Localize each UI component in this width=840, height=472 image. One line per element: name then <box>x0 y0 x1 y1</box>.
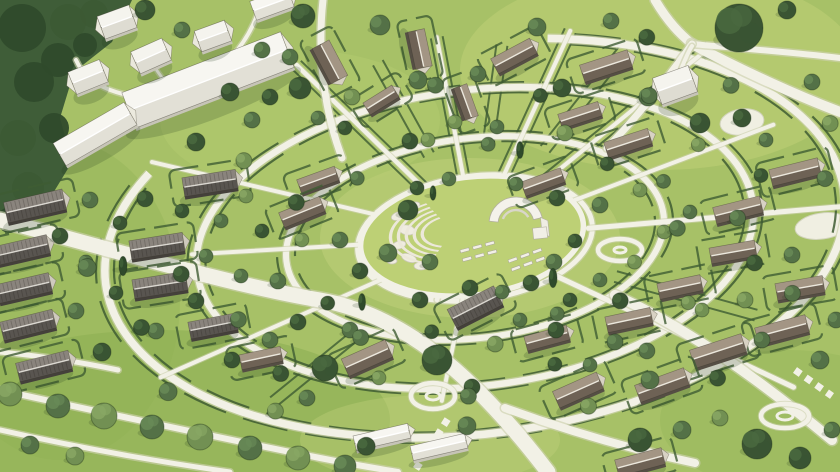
canopy-blob <box>60 234 67 241</box>
canopy-blob <box>420 298 427 305</box>
canopy-blob <box>232 358 239 365</box>
canopy-highlight <box>682 297 690 305</box>
canopy-blob <box>830 121 837 128</box>
canopy-highlight <box>412 293 421 302</box>
canopy-blob <box>690 210 696 216</box>
canopy-blob <box>825 177 832 184</box>
canopy-highlight <box>642 89 651 98</box>
canopy-highlight <box>332 233 341 242</box>
canopy-blob <box>688 301 694 307</box>
canopy-highlight <box>639 30 648 39</box>
canopy-blob <box>145 8 154 17</box>
canopy-highlight <box>784 248 793 257</box>
canopy-highlight <box>311 112 319 120</box>
canopy-highlight <box>294 447 305 458</box>
canopy-blob <box>792 291 799 298</box>
canopy-highlight <box>811 352 821 362</box>
canopy-highlight <box>187 134 197 144</box>
canopy-blob <box>379 376 385 382</box>
canopy-highlight <box>673 422 683 432</box>
canopy-blob <box>647 35 654 42</box>
canopy-highlight <box>236 154 245 163</box>
canopy-blob <box>554 260 561 267</box>
canopy-blob <box>196 140 204 148</box>
canopy-highlight <box>421 134 429 142</box>
canopy-blob <box>270 95 277 102</box>
canopy-highlight <box>747 256 756 265</box>
canopy-blob <box>298 320 305 327</box>
canopy-highlight <box>273 367 282 376</box>
canopy-blob <box>206 254 212 260</box>
canopy-highlight <box>174 267 183 276</box>
canopy-blob <box>141 325 148 332</box>
canopy-blob <box>182 28 189 35</box>
canopy-highlight <box>295 234 303 242</box>
canopy-highlight <box>371 17 382 28</box>
canopy-highlight <box>255 225 263 233</box>
canopy-blob <box>590 363 596 369</box>
canopy-blob <box>531 281 538 288</box>
canopy-highlight <box>214 215 222 223</box>
canopy-blob <box>470 286 477 293</box>
site-plan-svg <box>0 0 840 472</box>
canopy-highlight <box>752 430 766 444</box>
canopy-highlight <box>289 196 298 205</box>
canopy-highlight <box>231 313 240 322</box>
canopy-blob <box>718 376 725 383</box>
canopy-blob <box>497 125 503 131</box>
canopy-blob <box>755 261 762 268</box>
canopy-highlight <box>351 172 359 180</box>
canopy-blob <box>428 138 434 144</box>
canopy-highlight <box>254 43 263 52</box>
canopy-highlight <box>148 416 159 427</box>
canopy-blob <box>432 330 438 336</box>
canopy-blob <box>635 260 641 266</box>
canopy-highlight <box>299 391 308 400</box>
tree <box>713 4 763 52</box>
canopy-blob <box>766 138 772 144</box>
canopy-highlight <box>804 75 813 84</box>
forest-canopy-blob <box>0 4 46 52</box>
forest-canopy-blob <box>73 33 97 57</box>
canopy-highlight <box>239 190 247 198</box>
canopy-blob <box>488 143 494 149</box>
canopy-highlight <box>723 79 732 88</box>
canopy-highlight <box>551 308 559 316</box>
canopy-blob <box>168 389 176 397</box>
canopy-blob <box>352 95 359 102</box>
canopy-blob <box>418 78 426 86</box>
canopy-highlight <box>759 134 767 142</box>
canopy-blob <box>449 177 455 183</box>
canopy-highlight <box>246 437 257 448</box>
canopy-blob <box>246 194 252 200</box>
canopy-blob <box>366 444 374 452</box>
canopy-highlight <box>731 5 753 27</box>
canopy-highlight <box>262 90 271 99</box>
canopy-blob <box>647 349 654 356</box>
canopy-highlight <box>778 2 788 12</box>
canopy-highlight <box>583 359 591 367</box>
canopy-blob <box>102 350 110 358</box>
canopy-highlight <box>299 5 310 16</box>
canopy-highlight <box>410 182 418 190</box>
canopy-highlight <box>262 333 271 342</box>
canopy-highlight <box>509 178 517 186</box>
canopy-highlight <box>568 235 576 243</box>
canopy-blob <box>360 269 367 276</box>
canopy-blob <box>430 260 437 267</box>
canopy-highlight <box>628 256 636 264</box>
canopy-blob <box>230 90 238 98</box>
canopy-highlight <box>136 2 147 13</box>
canopy-highlight <box>464 380 473 389</box>
canopy-highlight <box>548 323 557 332</box>
canopy-highlight <box>54 395 65 406</box>
canopy-highlight <box>790 449 802 461</box>
canopy-blob <box>540 94 546 100</box>
canopy-highlight <box>221 84 231 94</box>
canopy-highlight <box>712 411 721 420</box>
canopy-blob <box>467 424 475 432</box>
canopy-highlight <box>695 304 703 312</box>
canopy-blob <box>252 118 259 125</box>
canopy-blob <box>455 120 461 126</box>
canopy-blob <box>380 23 389 32</box>
canopy-highlight <box>823 117 832 126</box>
canopy-highlight <box>372 372 380 380</box>
canopy-blob <box>565 131 572 138</box>
canopy-blob <box>761 174 767 180</box>
canopy-highlight <box>603 14 612 23</box>
canopy-highlight <box>422 255 431 264</box>
canopy-highlight <box>134 321 143 330</box>
canopy-highlight <box>199 250 207 258</box>
canopy-blob <box>792 253 799 260</box>
canopy-blob <box>600 203 607 210</box>
canopy-blob <box>435 83 442 90</box>
canopy-highlight <box>338 122 346 130</box>
canopy-highlight <box>513 314 521 322</box>
canopy-blob <box>562 86 570 94</box>
canopy-blob <box>649 94 656 101</box>
community-master-plan-illustration <box>0 0 840 472</box>
canopy-highlight <box>244 113 253 122</box>
canopy-highlight <box>290 79 302 91</box>
canopy-highlight <box>68 304 77 313</box>
canopy-blob <box>478 72 485 79</box>
canopy-highlight <box>402 134 411 143</box>
canopy-blob <box>90 198 97 205</box>
canopy-highlight <box>138 192 147 201</box>
canopy-blob <box>812 80 819 87</box>
canopy-blob <box>281 372 288 379</box>
canopy-blob <box>520 318 526 324</box>
canopy-highlight <box>470 67 479 76</box>
canopy-blob <box>650 378 658 386</box>
canopy-blob <box>275 409 282 416</box>
canopy-blob <box>745 298 752 305</box>
canopy-blob <box>820 358 828 366</box>
canopy-highlight <box>352 264 361 273</box>
canopy-blob <box>262 229 268 235</box>
canopy-highlight <box>399 202 410 213</box>
canopy-blob <box>677 226 684 233</box>
canopy-highlight <box>109 287 117 295</box>
canopy-blob <box>196 299 203 306</box>
canopy-highlight <box>710 371 719 380</box>
canopy-highlight <box>353 331 362 340</box>
canopy-blob <box>340 238 347 245</box>
canopy-blob <box>762 338 769 345</box>
canopy-highlight <box>607 335 616 344</box>
canopy-highlight <box>270 274 279 283</box>
canopy-highlight <box>268 404 277 413</box>
canopy-blob <box>516 182 522 188</box>
canopy-blob <box>702 308 708 314</box>
canopy-blob <box>742 116 750 124</box>
canopy-highlight <box>6 383 17 394</box>
canopy-highlight <box>409 72 419 82</box>
canopy-blob <box>588 404 595 411</box>
canopy-highlight <box>754 169 762 177</box>
canopy-blob <box>241 274 247 280</box>
canopy-highlight <box>430 187 433 194</box>
canopy-highlight <box>448 116 456 124</box>
canopy-blob <box>300 85 310 95</box>
canopy-highlight <box>785 287 794 296</box>
canopy-blob <box>296 200 303 207</box>
canopy-highlight <box>548 358 556 366</box>
canopy-highlight <box>358 439 368 449</box>
canopy-highlight <box>344 90 353 99</box>
canopy-blob <box>468 394 475 401</box>
canopy-blob <box>120 221 126 227</box>
canopy-highlight <box>657 226 665 234</box>
canopy-blob <box>664 180 670 186</box>
canopy-highlight <box>546 255 555 264</box>
canopy-blob <box>262 48 269 55</box>
canopy-blob <box>221 219 227 225</box>
canopy-highlight <box>21 437 31 447</box>
canopy-highlight <box>557 126 566 135</box>
canopy-highlight <box>82 193 91 202</box>
canopy-blob <box>307 396 314 403</box>
canopy-highlight <box>581 399 590 408</box>
canopy-highlight <box>553 80 563 90</box>
canopy-blob <box>417 186 423 192</box>
canopy-blob <box>145 197 152 204</box>
canopy-highlight <box>657 175 665 183</box>
forest-canopy-blob <box>0 120 36 156</box>
canopy-blob <box>575 239 581 245</box>
canopy-highlight <box>636 429 647 440</box>
canopy-highlight <box>639 344 648 353</box>
canopy-highlight <box>174 23 183 32</box>
canopy-blob <box>302 238 308 244</box>
canopy-blob <box>357 177 363 183</box>
canopy-highlight <box>549 270 553 280</box>
canopy-blob <box>620 299 627 306</box>
canopy-highlight <box>495 286 503 294</box>
canopy-highlight <box>641 372 651 382</box>
canopy-blob <box>156 329 163 336</box>
canopy-highlight <box>224 353 233 362</box>
canopy-highlight <box>592 198 601 207</box>
canopy-highlight <box>458 418 468 428</box>
canopy-highlight <box>733 110 743 120</box>
canopy-blob <box>615 340 622 347</box>
canopy-blob <box>611 19 618 26</box>
canopy-highlight <box>175 205 183 213</box>
canopy-blob <box>345 126 351 132</box>
canopy-highlight <box>462 281 471 290</box>
canopy-highlight <box>593 274 601 282</box>
canopy-blob <box>328 301 334 307</box>
canopy-blob <box>698 143 704 149</box>
canopy-blob <box>640 188 646 194</box>
canopy-blob <box>290 55 297 62</box>
stage-structure <box>533 227 548 239</box>
canopy-highlight <box>730 211 739 220</box>
canopy-highlight <box>342 323 351 332</box>
canopy-blob <box>278 279 285 286</box>
canopy-highlight <box>523 276 532 285</box>
canopy-blob <box>361 336 368 343</box>
canopy-blob <box>570 298 576 304</box>
canopy-blob <box>75 454 83 462</box>
canopy-blob <box>182 209 188 215</box>
canopy-highlight <box>99 404 111 416</box>
canopy-blob <box>556 328 563 335</box>
canopy-highlight <box>113 217 121 225</box>
canopy-highlight <box>534 90 542 98</box>
canopy-blob <box>30 443 38 451</box>
canopy-highlight <box>670 221 679 230</box>
canopy-blob <box>557 312 563 318</box>
canopy-highlight <box>160 384 170 394</box>
canopy-highlight <box>93 344 103 354</box>
canopy-blob <box>388 251 396 259</box>
canopy-highlight <box>428 78 437 87</box>
canopy-blob <box>270 338 277 345</box>
canopy-highlight <box>517 143 521 151</box>
canopy-blob <box>495 342 502 349</box>
canopy-highlight <box>188 294 197 303</box>
canopy-blob <box>800 455 810 465</box>
canopy-highlight <box>482 138 490 146</box>
canopy-highlight <box>490 121 498 129</box>
canopy-blob <box>682 428 690 436</box>
canopy-highlight <box>335 457 347 469</box>
canopy-highlight <box>817 172 826 181</box>
canopy-blob <box>787 8 795 16</box>
canopy-highlight <box>282 50 291 59</box>
canopy-highlight <box>549 191 558 200</box>
canopy-blob <box>318 116 324 122</box>
canopy-blob <box>537 25 545 33</box>
canopy-highlight <box>824 423 833 432</box>
canopy-blob <box>408 208 417 217</box>
canopy-blob <box>76 309 83 316</box>
canopy-highlight <box>290 315 299 324</box>
canopy-blob <box>87 265 95 273</box>
canopy-highlight <box>359 295 363 303</box>
canopy-blob <box>557 196 564 203</box>
canopy-highlight <box>379 245 389 255</box>
tree <box>0 382 22 406</box>
canopy-highlight <box>691 115 702 126</box>
canopy-highlight <box>425 326 433 334</box>
canopy-highlight <box>601 158 609 166</box>
canopy-highlight <box>461 389 470 398</box>
canopy-highlight <box>320 356 332 368</box>
canopy-blob <box>116 291 122 297</box>
canopy-highlight <box>195 425 207 437</box>
canopy-blob <box>238 318 245 325</box>
canopy-highlight <box>563 294 571 302</box>
canopy-highlight <box>432 346 446 360</box>
canopy-blob <box>720 416 727 423</box>
canopy-highlight <box>79 260 89 270</box>
canopy-blob <box>700 121 709 130</box>
canopy-highlight <box>633 184 641 192</box>
canopy-blob <box>731 83 738 90</box>
canopy-highlight <box>737 293 746 302</box>
canopy-highlight <box>52 229 61 238</box>
canopy-highlight <box>613 294 622 303</box>
canopy-blob <box>832 428 839 435</box>
canopy-blob <box>181 272 188 279</box>
canopy-blob <box>502 290 508 296</box>
canopy-blob <box>244 159 251 166</box>
canopy-highlight <box>528 19 538 29</box>
canopy-highlight <box>321 297 329 305</box>
canopy-highlight <box>488 337 497 346</box>
canopy-highlight <box>66 448 76 458</box>
canopy-highlight <box>692 139 700 147</box>
canopy-blob <box>738 216 745 223</box>
canopy-blob <box>607 162 613 168</box>
canopy-highlight <box>234 270 242 278</box>
canopy-highlight <box>828 313 837 322</box>
canopy-highlight <box>754 333 763 342</box>
canopy-highlight <box>442 173 450 181</box>
canopy-highlight <box>119 258 123 268</box>
canopy-blob <box>555 363 561 369</box>
canopy-blob <box>410 139 417 146</box>
canopy-highlight <box>683 206 691 214</box>
canopy-blob <box>600 278 606 284</box>
